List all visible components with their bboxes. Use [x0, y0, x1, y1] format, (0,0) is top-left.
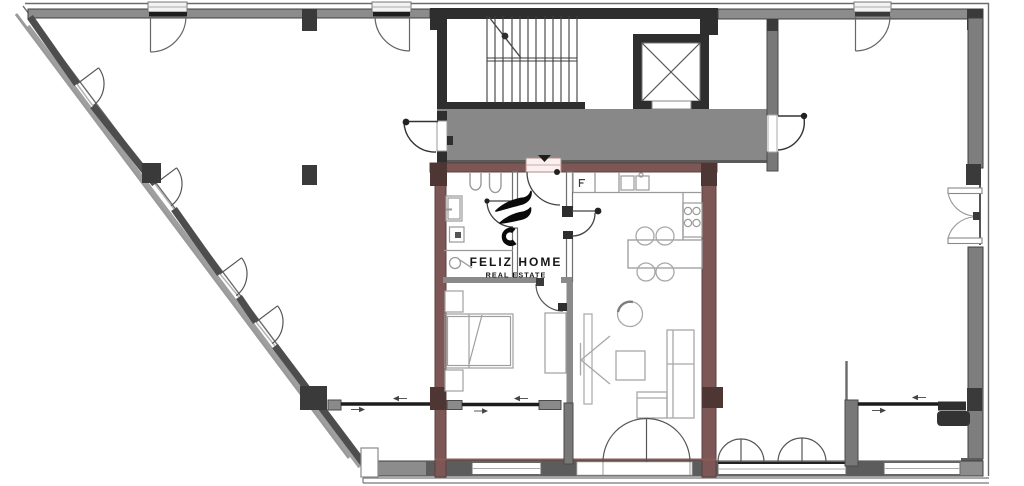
svg-text:FELIZ HOME: FELIZ HOME — [470, 255, 563, 269]
svg-text:REAL ESTATE: REAL ESTATE — [486, 271, 547, 280]
